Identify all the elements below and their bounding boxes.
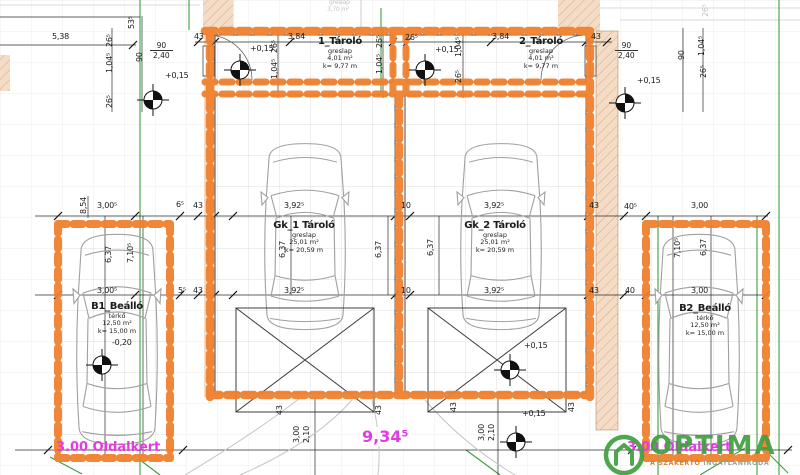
- room-perimeter: k= 15,00 m: [84, 328, 150, 336]
- level-label: -0,20: [112, 339, 132, 347]
- faded-floor-area: 3,70 m²: [327, 7, 349, 13]
- dim-label: 43: [276, 405, 284, 415]
- room-perimeter: k= 9,77 m: [504, 63, 578, 71]
- dim-label: 43: [194, 33, 204, 41]
- dim-label: 43: [450, 402, 458, 412]
- dim-label: 6,37: [105, 246, 113, 263]
- dim-label: 1,04⁵: [376, 54, 384, 74]
- dim-label: 6,37: [375, 241, 383, 258]
- dim-label: 26⁵: [405, 34, 418, 42]
- room-perimeter: k= 20,59 m: [261, 247, 347, 255]
- dim-label: 43: [193, 202, 203, 210]
- level-label: +0,15: [165, 72, 189, 80]
- room-perimeter: k= 20,59 m: [452, 247, 538, 255]
- logo-brand: OPTIMA: [650, 433, 777, 459]
- dim-label: 7,10⁵: [674, 238, 682, 258]
- dim-left-width: 5,38: [52, 33, 69, 41]
- optima-house-icon: [602, 433, 646, 475]
- dim-label: 3,92⁵: [484, 202, 504, 210]
- dim-label: 1,04⁵: [271, 59, 279, 79]
- optima-logo: OPTIMA A SZAKÉRTŐ INGATLANIRODA: [602, 433, 777, 475]
- dim-label: 2,10: [488, 424, 496, 441]
- dim-label: 3,00: [293, 426, 301, 443]
- dim-label: 3,00: [691, 287, 708, 295]
- dim-label: 53⁵: [128, 16, 136, 29]
- dim-label: 26⁵: [700, 65, 708, 78]
- dim-label: 40: [625, 287, 635, 295]
- dim-label: 43: [589, 287, 599, 295]
- level-label: +0,15: [637, 77, 661, 85]
- window-size-left: 90 2,40: [150, 41, 173, 61]
- dim-label: 3,92⁵: [284, 287, 304, 295]
- dim-label: 3,00⁵: [97, 202, 117, 210]
- dim-label: 5⁵: [178, 287, 186, 295]
- window-width: 90: [615, 41, 638, 51]
- dim-label: 26⁵: [106, 34, 114, 47]
- dim-label: 8,54: [80, 197, 88, 214]
- room-label-storage1: 1_Tároló greslap 4,01 m² k= 9,77 m: [303, 36, 377, 71]
- dim-label: 7,10⁵: [127, 243, 135, 263]
- room-label-carport1: B1_Beálló térkő 12,50 m² k= 15,00 m: [84, 301, 150, 336]
- dim-label: 2,10: [303, 426, 311, 443]
- room-label-storage2: 2_Tároló greslap 4,01 m² k= 9,77 m: [504, 36, 578, 71]
- dim-label: 90: [136, 52, 144, 62]
- dim-label: 6,37: [427, 239, 435, 256]
- dim-label: 43: [193, 287, 203, 295]
- logo-tagline-2: INGATLANIRODA: [703, 460, 769, 467]
- window-sill: 2,40: [150, 51, 173, 60]
- dim-label: 10: [401, 202, 411, 210]
- dim-label: 43: [589, 202, 599, 210]
- dim-label: 26⁵: [702, 4, 710, 17]
- room-label-garage2: Gk_2 Tároló greslap 25,01 m² k= 20,59 m: [452, 220, 538, 255]
- side-garden-label-left: 3.00 Oldalkert: [56, 440, 160, 455]
- level-label: +0,15: [522, 410, 546, 418]
- dim-label: 3,00: [691, 202, 708, 210]
- room-perimeter: k= 9,77 m: [303, 63, 377, 71]
- logo-tagline-1: A SZAKÉRTŐ: [650, 460, 700, 467]
- dim-label: 26⁵: [455, 70, 463, 83]
- room-perimeter: k= 15,00 m: [672, 330, 738, 338]
- dim-label: 40⁵: [624, 203, 637, 211]
- dim-label: 26⁵: [271, 40, 279, 53]
- dim-label: 1,04⁵: [106, 53, 114, 73]
- floor-plan: greslap 3,70 m² 26⁵ 5,38 53⁵ 26⁵ 1,04⁵ 2…: [0, 0, 800, 475]
- dim-label: 3,92⁵: [284, 202, 304, 210]
- window-width: 90: [150, 41, 173, 51]
- dim-label: 3,92⁵: [484, 287, 504, 295]
- dim-label: 90: [678, 50, 686, 60]
- dim-label: 26⁵: [106, 95, 114, 108]
- dim-label: 6⁵: [176, 201, 184, 209]
- dim-label: 26⁵: [376, 35, 384, 48]
- logo-tagline: A SZAKÉRTŐ INGATLANIRODA: [650, 460, 777, 467]
- dim-label: 43: [375, 405, 383, 415]
- dim-label: 43: [568, 402, 576, 412]
- window-sill: 2,40: [615, 51, 638, 60]
- dim-label: 3,00: [478, 424, 486, 441]
- dim-label: 6,37: [700, 239, 708, 256]
- dim-label: 10: [401, 287, 411, 295]
- window-size-right: 90 2,40: [615, 41, 638, 61]
- dim-label: 1,04⁵: [698, 36, 706, 56]
- dim-label: 3,00⁵: [97, 287, 117, 295]
- level-label: +0,15: [524, 342, 548, 350]
- room-label-garage1: Gk_1 Tároló greslap 25,01 m² k= 20,59 m: [261, 220, 347, 255]
- total-width-label: 9,34⁵: [359, 427, 411, 446]
- dim-label: 43: [591, 33, 601, 41]
- room-label-carport2: B2_Beálló térkő 12,50 m² k= 15,00 m: [672, 303, 738, 338]
- dim-label: 1,04⁵: [455, 37, 463, 57]
